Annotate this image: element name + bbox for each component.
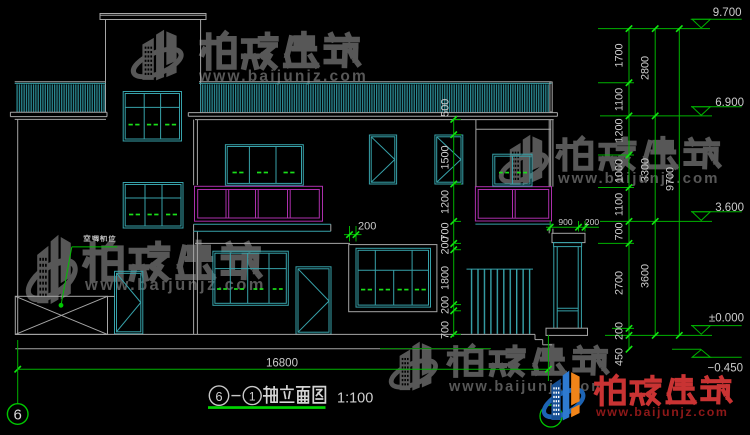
svg-text:16800: 16800 — [266, 357, 298, 369]
svg-text:1100: 1100 — [613, 193, 625, 216]
svg-text:200: 200 — [439, 236, 451, 254]
svg-text:1500: 1500 — [439, 145, 451, 169]
svg-text:200: 200 — [585, 217, 599, 227]
svg-text:6: 6 — [215, 389, 222, 404]
svg-text:3.600: 3.600 — [715, 202, 744, 214]
svg-text:6: 6 — [14, 406, 22, 423]
svg-text:1: 1 — [249, 389, 256, 403]
svg-text:±0.000: ±0.000 — [709, 313, 744, 325]
svg-text:9700: 9700 — [664, 167, 676, 191]
svg-text:2700: 2700 — [613, 271, 625, 295]
svg-text:−0.450: −0.450 — [707, 363, 743, 375]
svg-text:200: 200 — [439, 296, 451, 314]
svg-text:3300: 3300 — [640, 158, 652, 182]
svg-text:6.900: 6.900 — [715, 97, 744, 109]
svg-text:9.700: 9.700 — [713, 7, 742, 19]
svg-text:1200: 1200 — [613, 118, 625, 142]
svg-text:700: 700 — [439, 321, 451, 339]
svg-text:450: 450 — [613, 348, 625, 366]
svg-text:700: 700 — [613, 222, 625, 240]
svg-text:www.baijunjz.com: www.baijunjz.com — [595, 405, 729, 419]
svg-text:900: 900 — [558, 217, 572, 227]
svg-text:3600: 3600 — [640, 264, 652, 288]
svg-text:200: 200 — [358, 220, 376, 232]
svg-text:1800: 1800 — [439, 266, 451, 290]
svg-text:www.baijunjz.com: www.baijunjz.com — [84, 276, 266, 294]
svg-text:1:100: 1:100 — [337, 390, 373, 406]
svg-text:200: 200 — [613, 322, 625, 340]
svg-text:2800: 2800 — [640, 56, 652, 80]
svg-text:www.baijunjz.com: www.baijunjz.com — [557, 170, 719, 187]
svg-text:1700: 1700 — [613, 43, 625, 67]
svg-text:1000: 1000 — [613, 159, 625, 183]
svg-text:500: 500 — [439, 99, 451, 117]
svg-text:www.baijunjz.com: www.baijunjz.com — [198, 68, 368, 85]
svg-text:1100: 1100 — [613, 88, 625, 111]
svg-text:1200: 1200 — [439, 190, 451, 214]
